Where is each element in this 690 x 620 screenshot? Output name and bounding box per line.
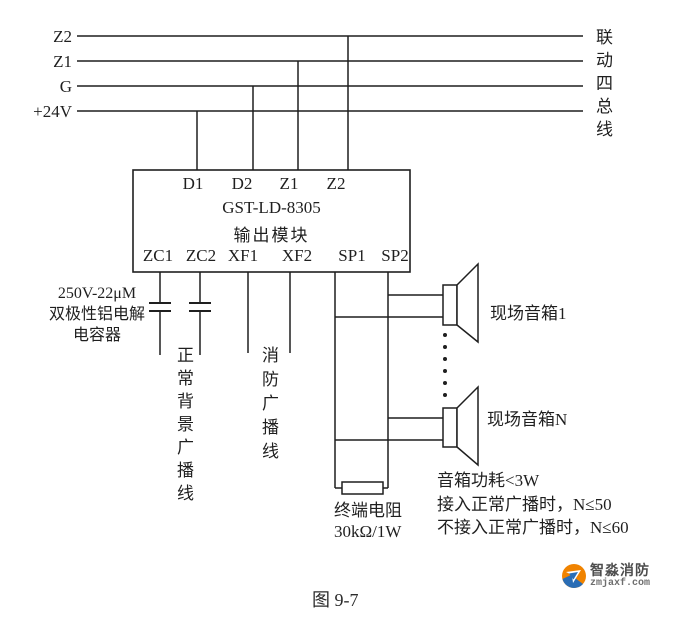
note-without-broadcast: 不接入正常广播时，N≤60	[437, 516, 629, 540]
resistor-value: 30kΩ/1W	[334, 521, 402, 542]
terminal-resistor-icon	[335, 482, 388, 494]
terminal-z2: Z2	[327, 174, 346, 193]
capacitor-note: 250V-22μM 双极性铝电解 电容器	[32, 283, 162, 346]
brand-logo-name: 智淼消防	[590, 563, 650, 577]
capacitor-note-line2: 双极性铝电解	[32, 304, 162, 325]
bus-label-z1: Z1	[20, 52, 72, 71]
bus-label-g: G	[20, 77, 72, 96]
speaker1-label: 现场音箱1	[490, 304, 567, 323]
bus-label-z2: Z2	[20, 27, 72, 46]
module-subtitle: 输出模块	[133, 221, 410, 246]
terminal-xf2: XF2	[282, 246, 312, 265]
speakerN-label: 现场音箱N	[487, 410, 567, 429]
figure-caption: 图 9-7	[312, 586, 359, 612]
fire-broadcast-line-label: 消防广播线	[256, 346, 281, 466]
capacitor-icon	[189, 303, 211, 311]
terminal-z1: Z1	[280, 174, 299, 193]
terminal-sp2: SP2	[381, 246, 408, 265]
terminal-zc1: ZC1	[143, 246, 173, 265]
bus-label-24v: +24V	[20, 102, 72, 121]
terminal-xf1: XF1	[228, 246, 258, 265]
module-name: GST-LD-8305	[133, 198, 410, 218]
brand-logo-url: zmjaxf.com	[590, 579, 650, 589]
speaker-icon	[335, 264, 478, 342]
capacitor-note-line3: 电容器	[32, 325, 162, 346]
terminal-zc2: ZC2	[186, 246, 216, 265]
normal-broadcast-line-label: 正常背景广播线	[171, 346, 196, 507]
speaker-notes: 音箱功耗<3W 接入正常广播时，N≤50 不接入正常广播时，N≤60	[437, 469, 629, 540]
speaker-icon	[335, 387, 478, 465]
wiring-diagram: Z2 Z1 G +24V 联动四总线 D1 D2 Z1 Z2 GST-LD-83…	[0, 0, 690, 620]
terminal-d1: D1	[183, 174, 204, 193]
terminal-d2: D2	[232, 174, 253, 193]
terminal-resistor-label: 终端电阻 30kΩ/1W	[334, 500, 402, 542]
brand-logo: 智淼消防 zmjaxf.com	[561, 563, 650, 589]
note-power: 音箱功耗<3W	[437, 469, 629, 493]
brand-logo-icon	[561, 563, 587, 589]
note-with-broadcast: 接入正常广播时，N≤50	[437, 493, 629, 517]
bus-lines	[77, 36, 583, 170]
resistor-name: 终端电阻	[334, 500, 402, 521]
bus-right-label: 联动四总线	[590, 28, 615, 143]
capacitor-note-line1: 250V-22μM	[32, 283, 162, 304]
ellipsis-dots	[443, 333, 447, 397]
terminal-sp1: SP1	[338, 246, 365, 265]
